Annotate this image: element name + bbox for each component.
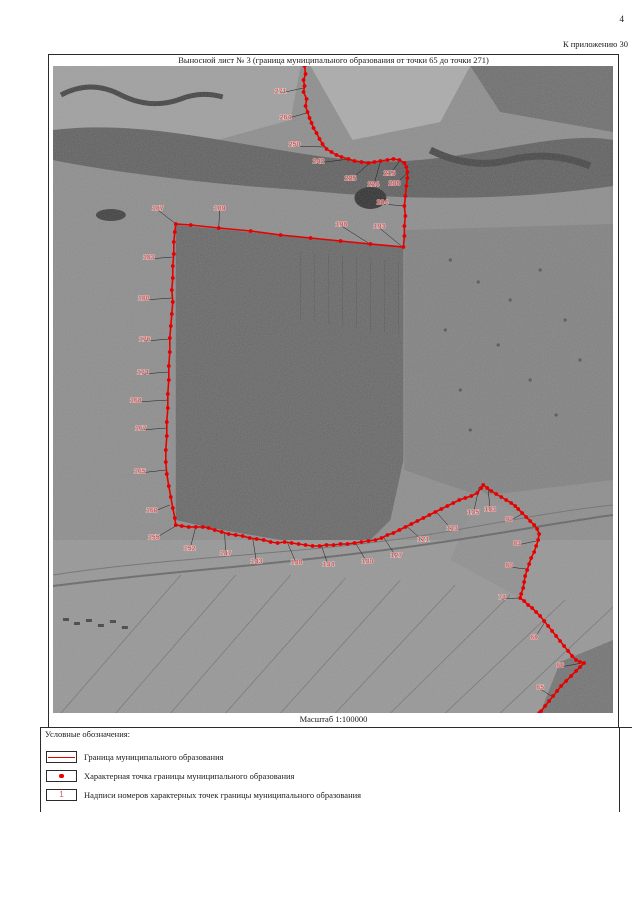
boundary-point-dot (309, 236, 313, 240)
boundary-point-dot (527, 562, 531, 566)
boundary-point-dot (504, 498, 508, 502)
point-number-label: 130 (362, 558, 374, 565)
boundary-point-dot (335, 153, 339, 157)
boundary-point-dot (485, 486, 489, 490)
boundary-point-dot (555, 689, 559, 693)
boundary-point-dot (170, 312, 174, 316)
boundary-point-dot (403, 214, 407, 218)
boundary-point-dot (529, 556, 533, 560)
boundary-point-dot (578, 660, 582, 664)
boundary-point-dot (415, 519, 419, 523)
point-number-label: 215 (384, 170, 396, 177)
boundary-point-dot (174, 523, 178, 527)
boundary-point-dot (534, 610, 538, 614)
boundary-point-dot (302, 78, 306, 82)
boundary-point-dot (166, 392, 170, 396)
point-number-label: 80 (505, 562, 513, 569)
boundary-point-dot (367, 539, 371, 543)
boundary-point-dot (513, 504, 517, 508)
point-number-label: 103 (484, 506, 496, 513)
boundary-point-dot (171, 300, 175, 304)
boundary-point-dot (169, 324, 173, 328)
boundary-point-dot (167, 378, 171, 382)
boundary-point-dot (374, 538, 378, 542)
point-number-label: 65 (536, 684, 544, 691)
point-number-label: 224 (368, 181, 380, 188)
point-number-label: 143 (251, 558, 263, 565)
boundary-point-dot (304, 104, 308, 108)
boundary-point-dot (164, 460, 168, 464)
boundary-point-dot (303, 84, 307, 88)
legend-item-boundary-point: Характерная точка границы муниципального… (46, 770, 294, 782)
boundary-point-dot (405, 176, 409, 180)
boundary-point-dot (445, 504, 449, 508)
boundary-point-dot (315, 131, 319, 135)
point-number-label: 176 (139, 336, 151, 343)
point-number-label: 167 (135, 425, 147, 432)
boundary-point-dot (536, 538, 540, 542)
boundary-point-dot (330, 150, 334, 154)
boundary-point-dot (578, 665, 582, 669)
boundary-point-dot (171, 506, 175, 510)
boundary-point-dot (304, 543, 308, 547)
point-number-label: 147 (220, 550, 232, 557)
boundary-point-dot (310, 121, 314, 125)
point-number-label: 208 (389, 180, 401, 187)
legend-item-label: Граница муниципального образования (84, 752, 224, 762)
legend-left-border (40, 727, 41, 812)
boundary-point-dot (174, 222, 178, 226)
boundary-point-dot (332, 543, 336, 547)
legend-right-border (619, 727, 620, 812)
boundary-point-dot (171, 276, 175, 280)
boundary-point-dot (207, 526, 211, 530)
legend-item-label: Надписи номеров характерных точек границ… (84, 790, 361, 800)
boundary-point-dot (304, 72, 308, 76)
boundary-point-dot (279, 233, 283, 237)
boundary-point-dot (248, 536, 252, 540)
boundary-point-dot (213, 528, 217, 532)
boundary-point-dot (170, 288, 174, 292)
boundary-point-dot (269, 540, 273, 544)
red-dot-icon (59, 774, 64, 779)
boundary-point-dot (167, 484, 171, 488)
boundary-point-dot (402, 224, 406, 228)
point-number-label: 193 (374, 223, 386, 230)
boundary-point-dot (227, 532, 231, 536)
boundary-point-dot (421, 516, 425, 520)
boundary-point-dot (559, 684, 563, 688)
boundary-point-dot (574, 658, 578, 662)
legend-item-point-number: 1 Надписи номеров характерных точек гран… (46, 789, 361, 801)
boundary-point-dot (403, 525, 407, 529)
point-number-label: 180 (138, 295, 150, 302)
boundary-point-dot (360, 160, 364, 164)
boundary-point-dot (489, 489, 493, 493)
boundary-point-dot (255, 537, 259, 541)
boundary-point-dot (373, 160, 377, 164)
boundary-point-dot (283, 540, 287, 544)
point-number-label: 121 (418, 536, 430, 543)
boundary-line-symbol (46, 751, 77, 763)
boundary-point-dot (302, 90, 306, 94)
point-number-label: 242 (313, 158, 325, 165)
boundary-point-dot (405, 170, 409, 174)
boundary-point-dot (165, 472, 169, 476)
point-number-label: 160 (146, 507, 158, 514)
boundary-point-dot (433, 510, 437, 514)
boundary-point-dot (523, 574, 527, 578)
boundary-point-dot (521, 586, 525, 590)
boundary-point-dot (532, 550, 536, 554)
boundary-point-dot (325, 147, 329, 151)
boundary-point-dot (297, 542, 301, 546)
point-number-label: 271 (275, 88, 287, 95)
boundary-point-dot (234, 533, 238, 537)
point-number-label: 69 (530, 634, 538, 641)
boundary-point-dot (339, 239, 343, 243)
boundary-point-dot (189, 223, 193, 227)
boundary-point-dot (409, 522, 413, 526)
boundary-point-dot (546, 624, 550, 628)
boundary-point-dot (339, 542, 343, 546)
boundary-point-dot (463, 496, 467, 500)
point-number-label: 174 (137, 369, 149, 376)
boundary-point-dot (217, 226, 221, 230)
point-number-label: 66 (556, 662, 564, 669)
point-number-label: 127 (391, 552, 403, 559)
boundary-point-dot (397, 158, 401, 162)
boundary-point-dot (391, 531, 395, 535)
point-number-label: 105 (467, 509, 479, 516)
point-number-symbol: 1 (46, 789, 77, 801)
point-number-label: 155 (148, 534, 160, 541)
boundary-point-dot (241, 534, 245, 538)
boundary-point-symbol (46, 770, 77, 782)
boundary-point-dot (535, 527, 539, 531)
boundary-point-dot (481, 483, 485, 487)
boundary-point-dot (402, 204, 406, 208)
point-number-label: 74 (498, 594, 506, 601)
point-number-label: 165 (134, 468, 146, 475)
boundary-point-dot (276, 541, 280, 545)
boundary-point-dot (427, 513, 431, 517)
boundary-point-dot (522, 599, 526, 603)
boundary-point-dot (311, 544, 315, 548)
boundary-point-dot (173, 230, 177, 234)
boundary-point-dot (562, 644, 566, 648)
boundary-point-dot (404, 184, 408, 188)
boundary-point-dot (165, 434, 169, 438)
boundary-point-dot (172, 240, 176, 244)
boundary-point-dot (499, 495, 503, 499)
satellite-map: 2712642502422252242152082041981931891871… (53, 66, 613, 713)
boundary-point-dot (451, 501, 455, 505)
boundary-point-dot (551, 694, 555, 698)
boundary-point-dot (386, 158, 390, 162)
point-number-label: 168 (130, 397, 142, 404)
boundary-point-dot (194, 525, 198, 529)
boundary-point-dot (167, 364, 171, 368)
boundary-point-dot (566, 649, 570, 653)
boundary-point-dot (173, 516, 177, 520)
boundary-point-dot (537, 532, 541, 536)
boundary-point-dot (318, 544, 322, 548)
sheet-title: Выносной лист № 3 (граница муниципальног… (48, 55, 619, 65)
point-number-label: 187 (152, 205, 164, 212)
boundary-point-dot (402, 234, 406, 238)
boundary-point-dot (353, 541, 357, 545)
boundary-point-dot (520, 511, 524, 515)
boundary-point-dot (524, 515, 528, 519)
boundary-point-dot (305, 97, 309, 101)
boundary-point-dot (469, 494, 473, 498)
divider-rule (40, 727, 632, 728)
boundary-point-dot (569, 674, 573, 678)
boundary-point-dot (547, 699, 551, 703)
boundary-point-dot (353, 159, 357, 163)
boundary-point-dot (169, 495, 173, 499)
point-number-label: 204 (377, 199, 389, 206)
boundary-point-dot (542, 619, 546, 623)
point-number-label: 90 (505, 516, 513, 523)
boundary-point-dot (308, 116, 312, 120)
point-number-label: 134 (323, 561, 335, 568)
boundary-point-dot (306, 110, 310, 114)
legend-heading: Условные обозначения: (45, 729, 130, 739)
boundary-point-dot (262, 538, 266, 542)
boundary-point-dot (164, 448, 168, 452)
point-number-label: 113 (447, 525, 458, 532)
boundary-point-dot (475, 491, 479, 495)
document-page: 4 К приложению 30 Выносной лист № 3 (гра… (0, 0, 640, 905)
boundary-point-dot (582, 661, 586, 665)
boundary-point-dot (525, 568, 529, 572)
boundary-point-dot (528, 519, 532, 523)
boundary-point-dot (534, 544, 538, 548)
red-line-icon (48, 757, 75, 758)
boundary-point-dot (318, 137, 322, 141)
boundary-point-dot (439, 507, 443, 511)
boundary-point-dot (518, 596, 522, 600)
boundary-point-dot (346, 542, 350, 546)
boundary-point-dot (526, 603, 530, 607)
boundary-point-dot (380, 536, 384, 540)
boundary-point-dot (165, 420, 169, 424)
boundary-point-dot (401, 245, 405, 249)
boundary-point-dot (290, 541, 294, 545)
boundary-point-dot (519, 592, 523, 596)
boundary-point-dot (391, 157, 395, 161)
boundary-point-dot (249, 229, 253, 233)
boundary-point-dot (554, 634, 558, 638)
boundary-point-dot (402, 161, 406, 165)
boundary-point-dot (538, 614, 542, 618)
boundary-point-dot (516, 507, 520, 511)
point-number-label: 138 (291, 559, 303, 566)
boundary-point-dot (386, 533, 390, 537)
boundary-point-dot (180, 524, 184, 528)
boundary-point-dot (367, 161, 371, 165)
annex-note: К приложению 30 (563, 39, 628, 49)
point-number-label: 189 (214, 205, 226, 212)
boundary-point-dot (558, 639, 562, 643)
boundary-point-dot (570, 654, 574, 658)
boundary-point-dot (321, 142, 325, 146)
point-number-label: 152 (184, 545, 196, 552)
boundary-point-dot (312, 126, 316, 130)
point-number-label: 83 (513, 540, 521, 547)
boundary-point-dot (168, 350, 172, 354)
boundary-point-dot (574, 669, 578, 673)
boundary-point-dot (187, 525, 191, 529)
boundary-point-dot (347, 157, 351, 161)
satellite-map-canvas: 2712642502422252242152082041981931891871… (53, 66, 613, 713)
boundary-point-dot (325, 543, 329, 547)
boundary-point-dot (220, 530, 224, 534)
boundary-point-dot (171, 264, 175, 268)
boundary-point-dot (379, 159, 383, 163)
boundary-point-dot (201, 525, 205, 529)
boundary-point-dot (360, 540, 364, 544)
boundary-point-dot (543, 704, 547, 708)
boundary-point-dot (509, 501, 513, 505)
boundary-point-dot (404, 165, 408, 169)
boundary-point-dot (530, 606, 534, 610)
terrain-art (53, 66, 613, 713)
boundary-point-dot (403, 194, 407, 198)
point-number-label: 264 (280, 114, 292, 121)
boundary-point-dot (340, 155, 344, 159)
number-one-icon: 1 (59, 791, 63, 799)
boundary-point-dot (166, 406, 170, 410)
boundary-point-dot (168, 336, 172, 340)
boundary-point-dot (522, 580, 526, 584)
point-number-label: 198 (336, 221, 348, 228)
point-number-label: 250 (289, 141, 301, 148)
boundary-point-dot (397, 528, 401, 532)
boundary-point-dot (564, 679, 568, 683)
boundary-point-dot (457, 498, 461, 502)
boundary-point-dot (369, 242, 373, 246)
legend-item-boundary-line: Граница муниципального образования (46, 751, 224, 763)
boundary-point-dot (494, 492, 498, 496)
boundary-point-dot (550, 629, 554, 633)
point-number-label: 183 (143, 254, 155, 261)
scale-label: Масштаб 1:100000 (48, 714, 619, 724)
point-number-label: 225 (345, 175, 357, 182)
page-number: 4 (620, 14, 625, 24)
boundary-point-dot (532, 523, 536, 527)
boundary-point-dot (172, 252, 176, 256)
legend-item-label: Характерная точка границы муниципального… (84, 771, 294, 781)
